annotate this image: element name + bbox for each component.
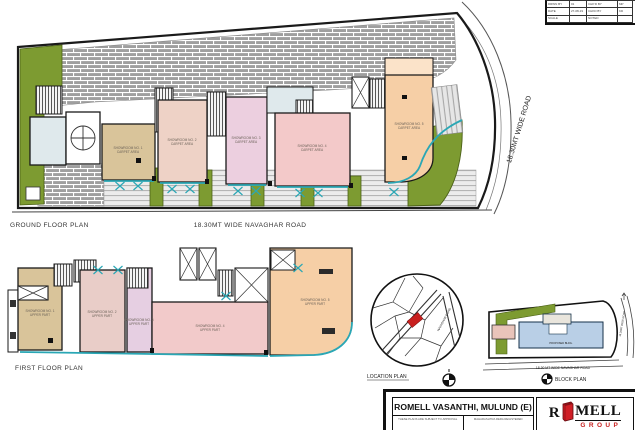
staircase [36,86,62,114]
svg-text:UPPER PART: UPPER PART [92,314,112,318]
ground-floor-plan-title: GROUND FLOOR PLAN [10,222,89,229]
svg-text:CARPET AREA: CARPET AREA [301,148,324,152]
logo-letter-r: R [549,406,560,421]
svg-text:UPPER PART: UPPER PART [129,322,149,326]
logo-box: R MELL GROUP [536,397,634,430]
block-plan-title: BLOCK PLAN [555,377,587,383]
rev-cell: NOTED [587,16,618,23]
svg-text:UPPER PART: UPPER PART [305,302,325,306]
paved-driveway [38,164,104,206]
first-floor-plan-drawing: SHOWROOM NO. 1 UPPER PART SHOWROOM NO. 2… [0,240,370,375]
romell-group-logo: R MELL GROUP [549,401,622,429]
north-arrow-icon [443,369,455,386]
rev-cell: CHK'D BY [587,1,618,8]
rev-cell: DRWN BY [547,1,570,8]
rev-cell: KD [618,8,633,15]
logo-letters-mell: MELL [575,404,621,421]
block-north-arrow-icon [542,374,552,384]
title-block: ROMELL VASANTHI, MULUND (E) THESE PLANS … [383,389,635,430]
rev-cell [618,16,633,23]
block-road-label: 18.30 MT WIDE NAVAGHAR ROAD [536,366,591,370]
rev-cell: SCALE [547,16,570,23]
location-plan-drawing: NAVAGHAR ROAD LOCATION PLAN [365,268,465,393]
block-building-label: PROPOSED BLDG. [549,341,572,345]
lift-symbol [71,126,95,150]
project-title: ROMELL VASANTHI, MULUND (E) [393,398,533,416]
svg-text:CARPET AREA: CARPET AREA [117,150,140,154]
svg-text:UPPER PART: UPPER PART [200,328,220,332]
rev-cell: 01 [570,1,587,8]
svg-text:CARPET AREA: CARPET AREA [171,142,194,146]
navaghar-road-label: 18.30MT WIDE NAVAGHAR ROAD [194,222,307,229]
rev-cell [570,16,587,23]
block-side-road-label: 18.30MT WIDE ROAD [618,311,626,337]
revision-table: DRWN BY 01 CHK'D BY MP DATE 27-08-19 CHK… [545,0,635,25]
first-floor-plan-title: FIRST FLOOR PLAN [15,365,83,372]
title-note-left: THESE PLANS ARE SUBJECT TO APPROVAL [393,416,464,430]
svg-text:CARPET AREA: CARPET AREA [398,126,421,130]
rev-cell: CHKD BY [587,8,618,15]
svg-text:CARPET AREA: CARPET AREA [235,140,258,144]
project-box: ROMELL VASANTHI, MULUND (E) THESE PLANS … [392,397,534,430]
logo-group-text: GROUP [549,423,622,430]
rev-cell: DATE [547,8,570,15]
location-plan-title: LOCATION PLAN [367,374,407,380]
ground-floor-plan-drawing: SHOWROOM NO. 1 CARPET AREA SHOWROOM NO. … [0,0,540,235]
logo-block-icon [561,401,574,421]
rev-cell: 27-08-19 [570,8,587,15]
block-plan-drawing: PROPOSED BLDG. 18.30MT WIDE ROAD 18.30 M… [483,292,635,387]
svg-text:UPPER PART: UPPER PART [30,313,50,317]
block-adjacent-building [492,325,515,339]
rev-cell: MP [618,1,633,8]
title-note-right: MAHARASHTRA RERA REGISTERED [464,416,534,430]
drawing-sheet: SHOWROOM NO. 1 CARPET AREA SHOWROOM NO. … [0,0,635,430]
